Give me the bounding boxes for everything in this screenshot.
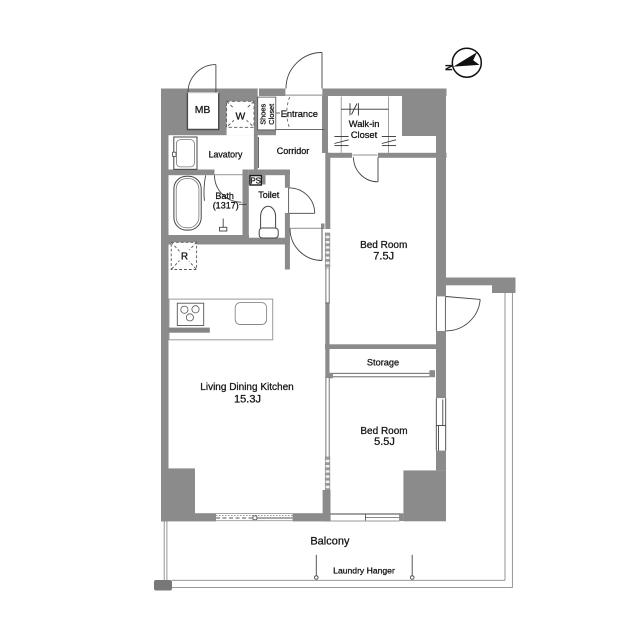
- svg-text:N: N: [444, 64, 454, 70]
- svg-text:7.5J: 7.5J: [373, 250, 394, 262]
- svg-text:15.3J: 15.3J: [234, 393, 261, 405]
- svg-text:Closet: Closet: [267, 104, 276, 125]
- svg-text:5.5J: 5.5J: [374, 436, 395, 448]
- svg-text:Walk-in: Walk-in: [349, 119, 380, 129]
- svg-text:Storage: Storage: [367, 357, 399, 367]
- svg-text:Closet: Closet: [351, 130, 378, 140]
- svg-text:PS: PS: [250, 177, 260, 186]
- svg-text:Living Dining Kitchen: Living Dining Kitchen: [200, 382, 293, 393]
- svg-text:Bath: Bath: [215, 191, 234, 201]
- svg-text:Entrance: Entrance: [281, 109, 318, 119]
- svg-text:(1317): (1317): [213, 200, 239, 210]
- svg-text:Laundry Hanger: Laundry Hanger: [333, 565, 395, 575]
- svg-text:R: R: [181, 252, 188, 263]
- svg-text:Lavatory: Lavatory: [209, 149, 243, 159]
- svg-text:Toilet: Toilet: [258, 190, 280, 200]
- svg-text:MB: MB: [195, 105, 211, 116]
- svg-text:Bed Room: Bed Room: [360, 240, 407, 251]
- svg-text:Corridor: Corridor: [277, 146, 310, 156]
- svg-text:W: W: [235, 111, 245, 122]
- svg-text:Balcony: Balcony: [310, 536, 350, 548]
